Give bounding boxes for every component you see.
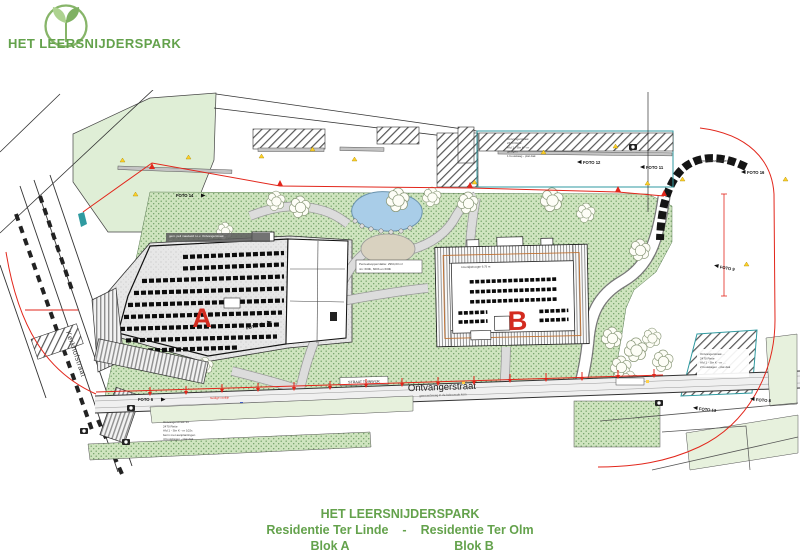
block-b-annotation: kroonlijsthoogte 9,75 m	[461, 264, 491, 269]
block-b-letter: B	[507, 306, 527, 336]
annotation-line: 1 bouwlaag - plat dak	[507, 154, 536, 158]
svg-text:…: …	[169, 238, 172, 242]
block-a-letter: A	[192, 303, 212, 333]
lawn-oval	[361, 234, 415, 264]
header: HET LEERSNIJDERSPARK	[0, 0, 260, 60]
camera-icon	[127, 405, 135, 411]
arrow-icon	[741, 170, 746, 174]
arrow-icon	[640, 165, 645, 169]
foto-label: FOTO 11	[646, 165, 664, 170]
marker-icon	[783, 177, 788, 181]
foto-label: FOTO 8	[756, 397, 772, 403]
marker-icon	[744, 262, 749, 266]
foto-label: FOTO 16	[747, 170, 765, 175]
footer: HET LEERSNIJDERSPARK Residentie Ter Lind…	[0, 506, 800, 554]
footer-title: HET LEERSNIJDERSPARK	[0, 506, 800, 522]
camera-icon	[629, 144, 637, 150]
tree-icon	[652, 350, 673, 372]
arrow-icon	[714, 263, 719, 268]
foto-label: FOTO 6	[138, 397, 154, 402]
annotation-line: Perceelsoppervlakte: 2964,03 m²	[359, 262, 403, 266]
marker-icon	[645, 181, 650, 185]
footer-blok-a: Blok A	[310, 538, 349, 554]
annotation-bottomright: Ontvangerstraat … 2470 Retie Afd 1 - Sie…	[697, 349, 749, 377]
footer-project-right: Residentie Ter Olm	[421, 522, 534, 538]
foto-label: FOTO 9	[719, 264, 735, 272]
marker-icon	[352, 157, 357, 161]
site-plan-page: HET LEERSNIJDERSPARK	[0, 0, 800, 559]
camera-icon	[80, 428, 88, 434]
marker-icon	[259, 154, 264, 158]
annotation-line: 2 bouwlagen - plat dak	[700, 365, 731, 369]
block-b-building: kroonlijsthoogte 9,75 m B	[435, 235, 589, 346]
brand-title: HET LEERSNIJDERSPARK	[8, 36, 181, 51]
marker-icon	[680, 177, 685, 181]
foto-label: FOTO 14	[176, 193, 194, 198]
footer-separator: -	[402, 522, 406, 538]
arrow-icon	[693, 406, 698, 410]
annotation-center: Perceelsoppervlakte: 2964,03 m² niv: 600…	[356, 260, 422, 273]
annotation-bottomleft: Ontvangerstraat 34 2470 Retie Afd 1 - Si…	[163, 420, 196, 441]
arrow-icon	[577, 160, 582, 164]
camera-icon	[122, 439, 130, 445]
rooilijn-label: huidige rooilijn	[210, 395, 230, 400]
footer-blok-b: Blok B	[454, 538, 494, 554]
foto-label: FOTO 12	[583, 160, 601, 165]
openbaar-domein-label: openbaar domein	[700, 159, 730, 163]
footer-project-left: Residentie Ter Linde	[266, 522, 388, 538]
annotation-line: 4 bouwlagen - plat dak	[163, 437, 194, 441]
block-a-annotation: gem. peil maaiveld t.o.v. Ontvangerstraa…	[169, 234, 224, 238]
block-a-building: A gem. peil maaiveld t.o.v. Ontvangerstr…	[118, 232, 348, 356]
site-plan-drawing: Kerkhofstraat	[0, 90, 800, 502]
camera-icon	[655, 400, 663, 406]
annotation-line: niv: 600b, 600b en 600b	[359, 267, 392, 271]
